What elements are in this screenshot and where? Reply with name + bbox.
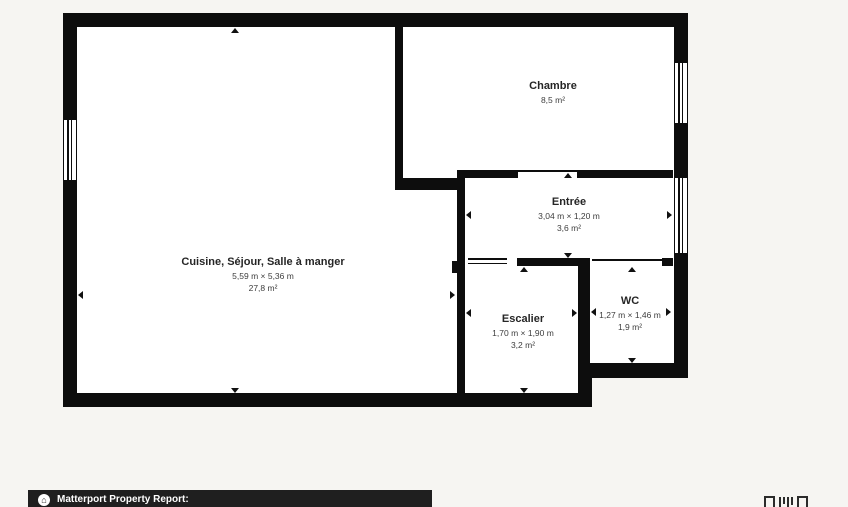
room-name: Cuisine, Séjour, Salle à manger (181, 256, 344, 268)
room-label-escalier: Escalier 1,70 m × 1,90 m 3,2 m² (492, 313, 554, 350)
bottom-right-icons (764, 496, 808, 507)
measure-arrow-left-icon (78, 291, 83, 299)
room-label-chambre: Chambre 8,5 m² (529, 80, 577, 105)
wall-chambre-entree-right (577, 170, 673, 178)
room-name: Entrée (538, 196, 600, 208)
room-name: WC (599, 295, 661, 307)
wall-chambre-cuisine-bottom (395, 178, 462, 190)
door-wc (592, 259, 662, 261)
room-label-cuisine: Cuisine, Séjour, Salle à manger 5,59 m ×… (181, 256, 344, 293)
window-pane-line (67, 120, 69, 180)
room-label-entree: Entrée 3,04 m × 1,20 m 3,6 m² (538, 196, 600, 233)
measure-arrow-left-icon (466, 211, 471, 219)
wall-wc-bottom (578, 363, 688, 378)
window-pane-line (682, 63, 684, 123)
measure-arrow-down-icon (628, 358, 636, 363)
room-area: 27,8 m² (181, 283, 344, 293)
room-name: Chambre (529, 80, 577, 92)
square-icon (764, 496, 775, 507)
room-dimensions: 1,27 m × 1,46 m (599, 310, 661, 320)
tick-marks-icon (779, 496, 793, 507)
wall-bottom (63, 393, 592, 407)
measure-arrow-right-icon (666, 308, 671, 316)
measure-arrow-right-icon (667, 211, 672, 219)
door-entree-leaf (468, 263, 507, 265)
footer-title: Matterport Property Report: (57, 494, 189, 506)
wall-door-hinge-detail (452, 261, 457, 273)
room-dimensions: 5,59 m × 5,36 m (181, 271, 344, 281)
door-chambre (518, 170, 577, 172)
window-pane-line (682, 178, 684, 253)
room-dimensions: 3,04 m × 1,20 m (538, 211, 600, 221)
room-name: Escalier (492, 313, 554, 325)
wall-entree-cuisine (457, 170, 465, 393)
wall-chambre-entree-left (457, 170, 518, 178)
footer-bar: ⌂ Matterport Property Report: (28, 490, 432, 507)
measure-arrow-left-icon (591, 308, 596, 316)
wall-top (63, 13, 688, 27)
measure-arrow-up-icon (520, 267, 528, 272)
window-pane-line (678, 178, 680, 253)
room-area: 1,9 m² (599, 322, 661, 332)
measure-arrow-down-icon (564, 253, 572, 258)
measure-arrow-up-icon (564, 173, 572, 178)
house-circle-icon: ⌂ (38, 494, 50, 506)
measure-arrow-down-icon (231, 388, 239, 393)
wall-wc-top-right (662, 258, 673, 266)
measure-arrow-up-icon (628, 267, 636, 272)
window-pane-line (678, 63, 680, 123)
measure-arrow-right-icon (450, 291, 455, 299)
room-area: 3,6 m² (538, 223, 600, 233)
measure-arrow-up-icon (231, 28, 239, 33)
room-dimensions: 1,70 m × 1,90 m (492, 328, 554, 338)
room-area: 8,5 m² (529, 95, 577, 105)
room-area: 3,2 m² (492, 340, 554, 350)
square-icon (797, 496, 808, 507)
room-label-wc: WC 1,27 m × 1,46 m 1,9 m² (599, 295, 661, 332)
measure-arrow-down-icon (520, 388, 528, 393)
measure-arrow-right-icon (572, 309, 577, 317)
wall-left (63, 13, 77, 407)
wall-escalier-wc (578, 258, 590, 393)
window-pane-line (71, 120, 73, 180)
door-entree-leaf (468, 258, 507, 260)
wall-cuisine-chambre (395, 27, 403, 190)
measure-arrow-left-icon (466, 309, 471, 317)
matterport-floorplan-screen: Cuisine, Séjour, Salle à manger 5,59 m ×… (0, 0, 848, 507)
